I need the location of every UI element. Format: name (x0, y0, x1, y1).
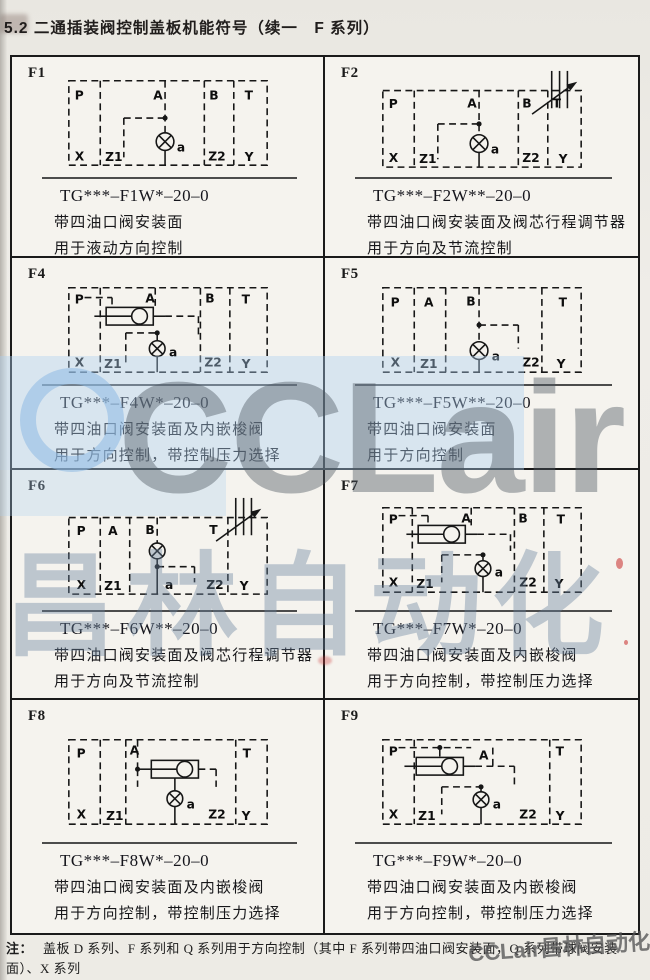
cell-label: F2 (341, 65, 359, 82)
port-label: Z2 (522, 355, 539, 369)
cell-divider (42, 384, 297, 386)
cell-divider (355, 842, 612, 844)
cell-f4: F4 (12, 258, 325, 470)
port-label: T (241, 292, 250, 306)
red-ink-speck (318, 656, 332, 665)
cover-plate-frame (68, 740, 266, 824)
model-code: TG***–F6W**–20–0 (60, 619, 323, 639)
port-label: P (388, 744, 397, 758)
red-ink-speck (616, 558, 623, 569)
port-label: A (479, 748, 489, 762)
scanned-catalog-page: 5.2 二通插装阀控制盖板机能符号（续一 F 系列） F1 (0, 0, 650, 980)
pilot-port-label: a (176, 140, 184, 154)
desc-line-2: 用于方向控制，带控制压力选择 (54, 902, 323, 923)
pilot-valve-icon (473, 792, 489, 808)
cell-label: F4 (28, 266, 46, 283)
cell-divider (42, 610, 297, 612)
pilot-port-label: a (491, 349, 499, 363)
port-label: Z1 (104, 579, 121, 593)
port-label: X (76, 807, 86, 821)
pilot-valve-icon (167, 791, 183, 807)
model-code: TG***–F4W*–20–0 (60, 393, 323, 413)
port-labels: P A T X Z1 Z2 Y a (388, 744, 564, 823)
diagram-f9: P A T X Z1 Z2 Y a (367, 726, 597, 834)
port-label: Y (238, 579, 248, 593)
pilot-valve-icon (470, 342, 488, 360)
desc-line-1: 带四油口阀安装面及内嵌梭阀 (367, 644, 638, 665)
port-label: A (145, 291, 155, 305)
cell-f7: F7 (325, 470, 638, 700)
model-code: TG***–F2W**–20–0 (373, 186, 638, 206)
port-label: B (145, 523, 154, 537)
cell-label: F9 (341, 708, 359, 725)
port-label: X (74, 149, 84, 163)
pilot-valve-icon (156, 133, 174, 151)
cell-label: F5 (341, 266, 359, 283)
port-label: Z2 (519, 575, 536, 589)
port-label: A (153, 88, 163, 102)
junction-dot (162, 116, 167, 121)
model-code: TG***–F5W**–20–0 (373, 393, 638, 413)
note-text-1: 盖板 D 系列、F 系列和 Q 系列用于方向控制（其中 F 系列带四油口阀安装面… (6, 941, 618, 976)
port-label: Y (557, 152, 567, 166)
cell-f2: F2 (325, 57, 638, 258)
desc-line-2: 用于方向控制，带控制压力选择 (54, 444, 323, 465)
port-label: Z2 (206, 578, 223, 592)
cell-divider (355, 384, 612, 386)
pilot-port-label: a (165, 578, 173, 592)
port-label: B (466, 294, 475, 308)
port-label: A (424, 295, 434, 309)
port-label: X (388, 575, 398, 589)
model-code: TG***–F1W*–20–0 (60, 186, 323, 206)
port-label: Y (555, 357, 565, 371)
shuttle-valve-icon (398, 508, 510, 551)
port-label: X (76, 578, 86, 592)
pilot-lines (154, 518, 194, 595)
desc-line-1: 带四油口阀安装面 (54, 211, 323, 232)
desc-line-2: 用于方向控制，带控制压力选择 (367, 902, 638, 923)
port-label: X (388, 807, 398, 821)
shuttle-valve-icon (84, 288, 198, 335)
cell-f9: F9 (325, 700, 638, 933)
port-label: A (129, 743, 139, 757)
port-labels: P A B T X Z1 Z2 Y a (74, 291, 250, 371)
port-labels: P A B T X Z1 Z2 Y a (76, 523, 248, 593)
diagram-f5: P A B T X Z1 Z2 Y a (367, 274, 597, 382)
desc-line-1: 带四油口阀安装面及内嵌梭阀 (367, 876, 638, 897)
diagram-f6: P A B T X Z1 Z2 Y a (53, 494, 283, 602)
diagram-f4: P A B T X Z1 Z2 Y a (53, 274, 283, 382)
port-label: Z2 (208, 149, 225, 163)
port-label: Z1 (419, 152, 436, 166)
port-label: X (390, 355, 400, 369)
cell-f6: F6 (12, 470, 325, 700)
footnote: 注：盖板 D 系列、F 系列和 Q 系列用于方向控制（其中 F 系列带四油口阀安… (6, 939, 646, 980)
port-label: P (388, 512, 397, 526)
port-label: A (467, 96, 477, 110)
model-code: TG***–F7W*–20–0 (373, 619, 638, 639)
port-label: Z2 (519, 807, 536, 821)
diagram-f1: P A B T X Z1 Z2 Y a (53, 67, 283, 175)
port-label: Y (240, 357, 250, 371)
port-label: A (461, 511, 471, 525)
desc-line-1: 带四油口阀安装面 (367, 418, 638, 439)
shuttle-valve-icon (398, 745, 514, 785)
port-label: T (242, 746, 251, 760)
cell-f5: F5 (325, 258, 638, 470)
cover-plate-frame (68, 81, 266, 165)
cover-plate-frame (68, 288, 266, 372)
cell-f8: F8 (12, 700, 325, 933)
pilot-valve-icon (475, 561, 491, 577)
port-label: P (74, 292, 83, 306)
port-label: Z2 (522, 151, 539, 165)
port-label: P (76, 524, 85, 538)
port-label: Z1 (418, 809, 435, 823)
port-label: T (244, 88, 253, 102)
port-label: A (108, 524, 118, 538)
port-label: B (209, 88, 218, 102)
red-ink-speck (624, 640, 628, 645)
desc-line-2: 用于方向及节流控制 (54, 670, 323, 691)
port-label: Z1 (106, 809, 123, 823)
diagram-f2: P A B T X Z1 Z2 Y a (367, 67, 597, 175)
desc-line-1: 带四油口阀安装面及内嵌梭阀 (54, 876, 323, 897)
port-label: T (552, 96, 561, 110)
port-labels: P A T X Z1 Z2 Y a (76, 743, 251, 823)
port-label: Z2 (204, 355, 221, 369)
junction-dot (476, 121, 481, 126)
port-label: P (388, 97, 397, 111)
cover-plate-frame (382, 508, 580, 592)
port-label: P (76, 746, 85, 760)
port-label: T (555, 744, 564, 758)
port-label: B (205, 291, 214, 305)
cell-label: F7 (341, 478, 359, 495)
note-line-1: 注：盖板 D 系列、F 系列和 Q 系列用于方向控制（其中 F 系列带四油口阀安… (6, 939, 646, 979)
desc-line-2: 用于方向控制 (367, 444, 638, 465)
port-label: Z2 (208, 807, 225, 821)
junction-dot (476, 323, 481, 328)
port-label: B (522, 96, 531, 110)
pilot-port-label: a (492, 797, 500, 811)
port-label: Z1 (416, 577, 433, 591)
model-code: TG***–F9W*–20–0 (373, 851, 638, 871)
cell-divider (42, 177, 297, 179)
port-labels: P A B T X Z1 Z2 Y a (388, 511, 565, 591)
port-label: Y (243, 150, 253, 164)
cell-label: F6 (28, 478, 46, 495)
pilot-port-label: a (168, 345, 176, 359)
cell-f1: F1 (12, 57, 325, 258)
desc-line-1: 带四油口阀安装面及内嵌梭阀 (54, 418, 323, 439)
port-label: T (209, 523, 218, 537)
port-label: Z1 (104, 357, 121, 371)
port-label: X (388, 151, 398, 165)
pilot-port-label: a (494, 565, 502, 579)
cell-divider (355, 177, 612, 179)
pilot-port-label: a (186, 797, 194, 811)
port-label: Y (240, 809, 250, 823)
port-label: Z1 (420, 357, 437, 371)
port-label: Z1 (105, 150, 122, 164)
desc-line-2: 用于液动方向控制 (54, 237, 323, 258)
note-prefix: 注： (6, 941, 33, 956)
desc-line-2: 用于方向控制，带控制压力选择 (367, 670, 638, 691)
port-label: X (74, 355, 84, 369)
desc-line-1: 带四油口阀安装面及阀芯行程调节器 (54, 644, 323, 665)
port-label: P (390, 295, 399, 309)
cell-divider (42, 842, 297, 844)
cell-divider (355, 610, 612, 612)
model-code: TG***–F8W*–20–0 (60, 851, 323, 871)
desc-line-2: 用于方向及节流控制 (367, 237, 638, 258)
diagram-f7: P A B T X Z1 Z2 Y a (367, 494, 597, 602)
pilot-port-label: a (490, 142, 498, 156)
desc-line-1: 带四油口阀安装面及阀芯行程调节器 (367, 211, 638, 232)
diagram-f8: P A T X Z1 Z2 Y a (53, 726, 283, 834)
port-label: T (556, 512, 565, 526)
port-labels: P A B T X Z1 Z2 Y a (388, 96, 567, 166)
page-title: 5.2 二通插装阀控制盖板机能符号（续一 F 系列） (4, 16, 380, 38)
port-label: P (74, 88, 83, 102)
port-labels: P A B T X Z1 Z2 Y a (74, 88, 253, 164)
pilot-valve-icon (470, 135, 488, 153)
pilot-valve-icon (149, 543, 165, 559)
cell-label: F8 (28, 708, 46, 725)
port-label: Y (554, 809, 564, 823)
pilot-valve-icon (149, 341, 165, 357)
symbol-table: F1 (10, 55, 640, 935)
port-label: T (558, 295, 567, 309)
cell-label: F1 (28, 65, 46, 82)
stroke-adjuster-icon (216, 498, 261, 541)
port-label: B (518, 511, 527, 525)
port-label: Y (553, 577, 563, 591)
